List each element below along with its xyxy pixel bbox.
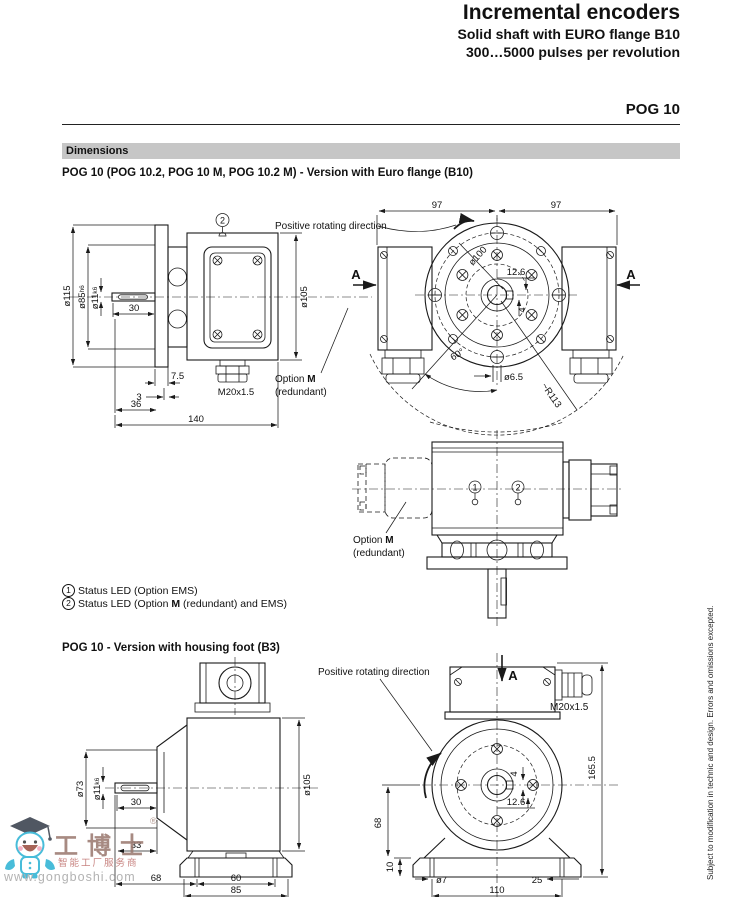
left-encoder-box	[378, 247, 432, 383]
dim-60: 60	[231, 873, 242, 884]
dim-97-left: 97	[432, 200, 443, 211]
dim-dia85: ø85h6	[77, 285, 88, 309]
header-rule	[62, 124, 680, 125]
housing-foot-heading: POG 10 - Version with housing foot (B3)	[62, 642, 280, 654]
legend-marker-1: 1	[62, 584, 75, 597]
dim-10: 10	[385, 862, 396, 873]
dim-12-6-foot: 12.6	[507, 797, 526, 808]
dim-25: 25	[532, 875, 543, 886]
model-name: POG 10	[626, 101, 680, 118]
dim-dia11: ø11k6	[90, 286, 101, 309]
top-view-led-2: 2	[512, 481, 524, 505]
dim-85: 85	[231, 885, 242, 896]
top-view-led-1: 1	[469, 481, 481, 505]
dim-4-foot: 4	[509, 771, 520, 776]
svg-text:2: 2	[515, 483, 520, 493]
dim-dia115: ø115	[62, 286, 73, 307]
foot-side-terminal-box	[195, 663, 270, 712]
foot-front-gland	[555, 670, 592, 700]
marker-2-label: 2	[220, 216, 225, 226]
dim-36: 36	[131, 399, 142, 410]
foot-front-view: M20x1.5 A Pos	[318, 653, 620, 897]
rotating-direction-label: Positive rotating direction	[275, 221, 387, 232]
dim-dia11-foot: ø11k6	[92, 777, 103, 800]
dim-110: 110	[489, 885, 504, 896]
option-m-label-2: (redundant)	[275, 387, 327, 398]
section-a-foot: A	[508, 668, 518, 683]
section-a-left: A	[351, 267, 361, 282]
page-title: Incremental encoders	[458, 0, 680, 25]
page-subtitle-2: 300…5000 pulses per revolution	[458, 43, 680, 61]
led-legend: 1Status LED (Option EMS) 2Status LED (Op…	[62, 584, 287, 610]
dim-30-foot: 30	[131, 797, 142, 808]
page-subtitle-1: Solid shaft with EURO flange B10	[458, 25, 680, 43]
legend-text-2: Status LED (Option M (redundant) and EMS…	[78, 598, 287, 610]
dim-dia6-5: ø6.5	[504, 372, 523, 383]
watermark-tagline: 智能工厂服务商	[58, 855, 139, 869]
top-view-option-m-label: Option M	[353, 535, 394, 546]
cable-gland	[216, 360, 249, 382]
dim-dia7: ø7	[436, 875, 447, 886]
top-view-option-m-connector	[358, 458, 432, 518]
legend-marker-2: 2	[62, 597, 75, 610]
euro-front-view: 97 97 Positive rotating direction A A ø1…	[275, 200, 640, 435]
top-view-body	[432, 442, 563, 535]
euro-flange-drawing: 2 ø115 ø85h6 ø11k6 30 7.5	[60, 192, 700, 445]
top-view-connector	[563, 460, 617, 520]
dim-60deg: 60°	[449, 346, 467, 363]
dimensions-section-bar: Dimensions	[62, 143, 680, 159]
svg-text:1: 1	[472, 483, 477, 493]
dim-4: 4	[517, 307, 528, 312]
watermark-url: www.gongboshi.com	[4, 870, 136, 884]
dim-30: 30	[129, 303, 140, 314]
legend-item-1: 1Status LED (Option EMS)	[62, 584, 287, 597]
rotating-direction-label-foot: Positive rotating direction	[318, 667, 430, 678]
sidebar-disclaimer: Subject to modification in technic and d…	[706, 528, 715, 880]
dim-97-right: 97	[551, 200, 562, 211]
watermark: 工博士 ® 智能工厂服务商 www.gongboshi.com	[2, 810, 172, 896]
gland-label-foot: M20x1.5	[550, 702, 589, 713]
box-screws	[213, 256, 262, 339]
right-encoder-box	[562, 247, 616, 383]
top-view-option-m-label-2: (redundant)	[353, 548, 405, 559]
dim-dia73: ø73	[75, 781, 86, 797]
dim-7-5: 7.5	[171, 371, 184, 382]
foot-front-dims: 165.5 4 12.6 68 10 ø7 25 110	[373, 663, 608, 897]
registered-mark-icon: ®	[150, 816, 157, 826]
euro-side-dims: ø115 ø85h6 ø11k6 30 7.5 3	[62, 225, 310, 428]
option-m-label: Option M	[275, 374, 316, 385]
section-a-right: A	[626, 267, 636, 282]
dim-12-6: 12.6	[507, 267, 526, 278]
legend-item-2: 2Status LED (Option M (redundant) and EM…	[62, 597, 287, 610]
dim-68-front: 68	[373, 818, 384, 829]
dim-dia100: ø100	[467, 245, 490, 268]
dim-dia105: ø105	[299, 286, 310, 308]
dim-165-5: 165.5	[587, 756, 598, 780]
page-header: Incremental encoders Solid shaft with EU…	[458, 0, 680, 61]
dim-dia105-foot: ø105	[302, 774, 313, 796]
gland-label: M20x1.5	[218, 387, 254, 398]
euro-top-view-drawing: 1 2 Option M (redundant)	[330, 428, 640, 628]
dim-140: 140	[188, 414, 204, 425]
datasheet-page: Incremental encoders Solid shaft with EU…	[0, 0, 734, 897]
euro-flange-heading: POG 10 (POG 10.2, POG 10 M, POG 10.2 M) …	[62, 167, 473, 179]
legend-text-1: Status LED (Option EMS)	[78, 585, 198, 597]
